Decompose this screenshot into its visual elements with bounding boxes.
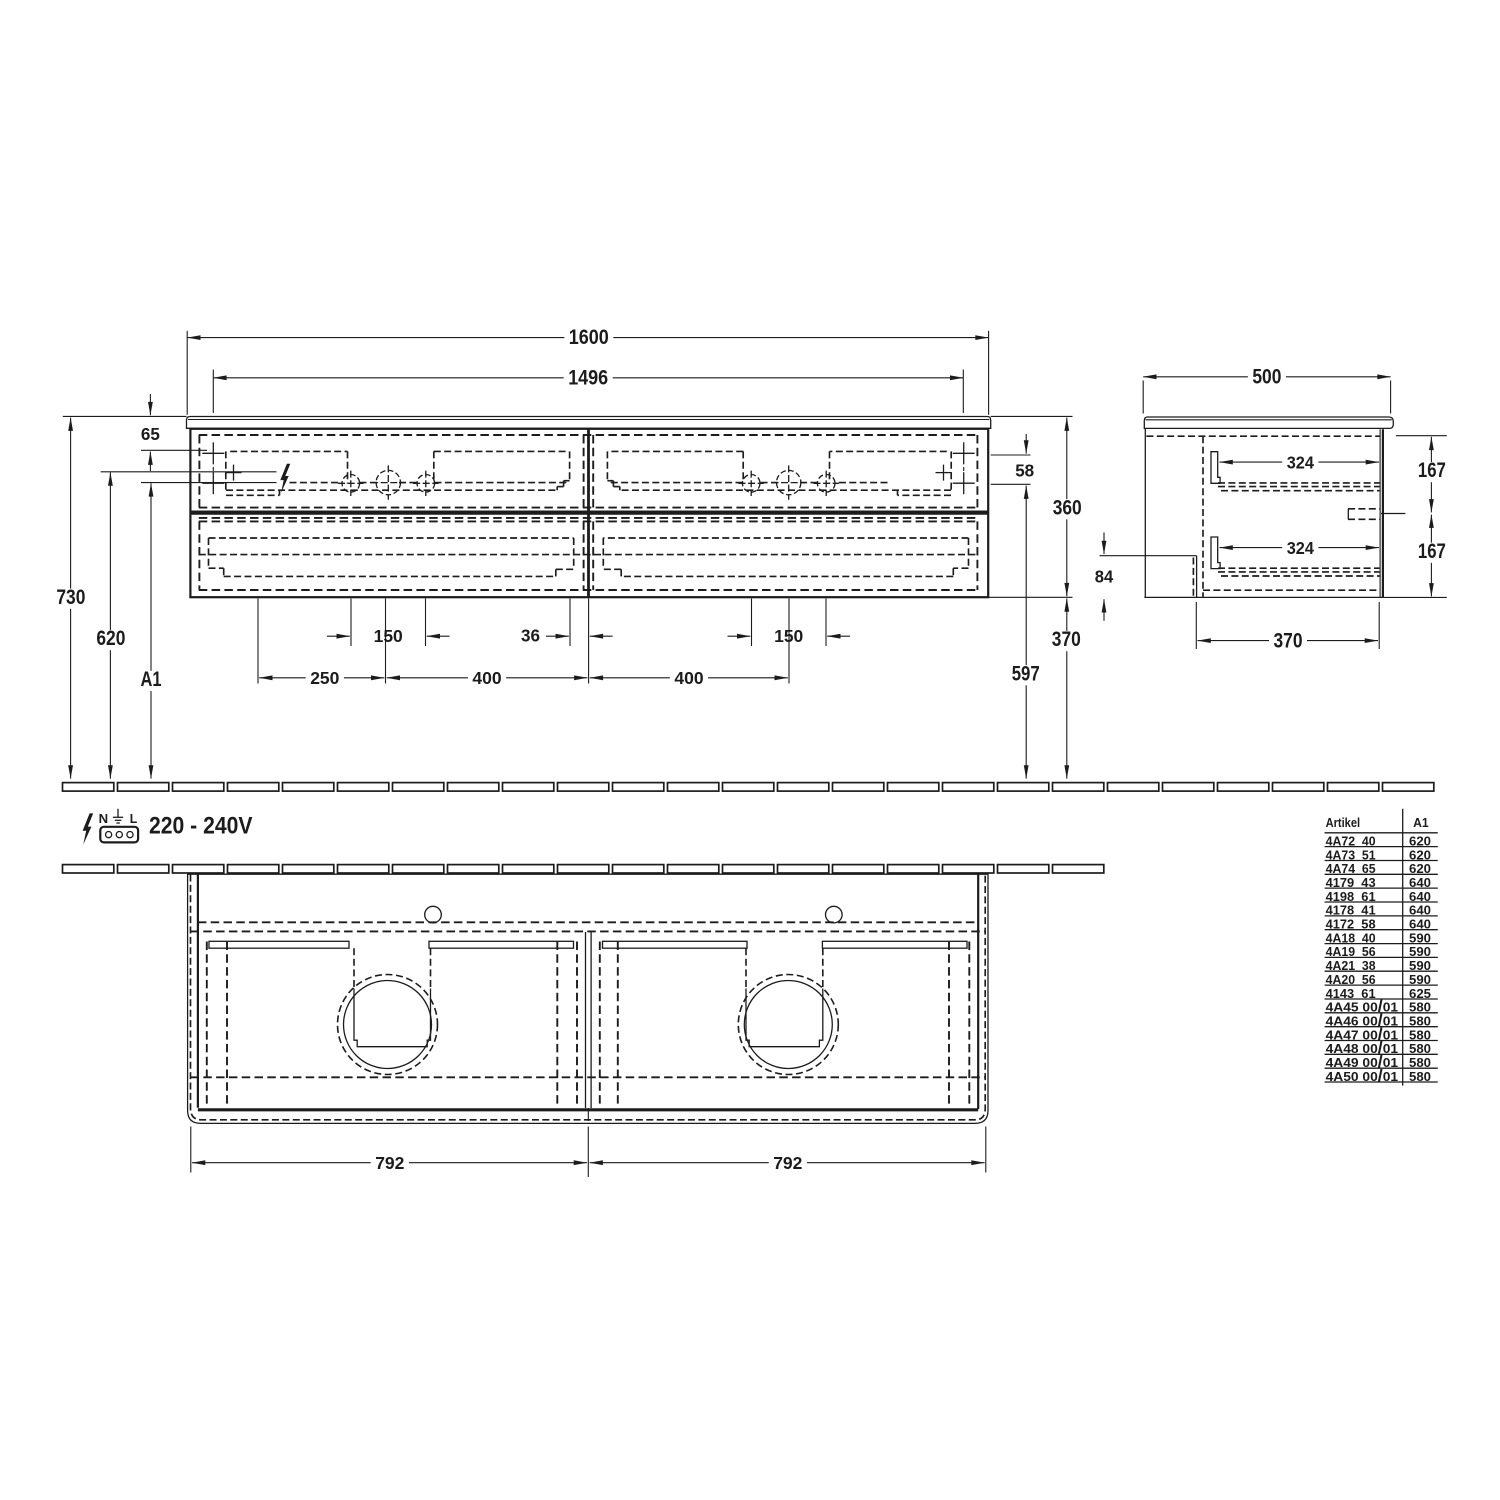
svg-text:58: 58 xyxy=(1015,461,1034,481)
svg-text:370: 370 xyxy=(1274,628,1303,652)
svg-text:250: 250 xyxy=(310,668,339,688)
svg-text:150: 150 xyxy=(774,626,803,646)
svg-text:1600: 1600 xyxy=(569,325,609,349)
svg-text:L: L xyxy=(130,811,138,826)
svg-text:A1: A1 xyxy=(141,667,162,691)
svg-text:84: 84 xyxy=(1095,566,1114,586)
svg-text:36: 36 xyxy=(521,625,540,645)
svg-text:792: 792 xyxy=(375,1153,404,1173)
svg-text:620: 620 xyxy=(96,626,125,650)
svg-text:A1: A1 xyxy=(1413,815,1429,830)
svg-text:792: 792 xyxy=(773,1153,802,1173)
svg-text:1496: 1496 xyxy=(568,366,608,390)
svg-text:360: 360 xyxy=(1053,495,1082,519)
svg-text:730: 730 xyxy=(56,585,85,609)
svg-text:324: 324 xyxy=(1287,453,1314,473)
svg-text:65: 65 xyxy=(141,424,160,444)
svg-text:167: 167 xyxy=(1418,539,1446,563)
svg-text:400: 400 xyxy=(472,668,501,688)
svg-text:597: 597 xyxy=(1012,661,1040,685)
svg-text:220 - 240V: 220 - 240V xyxy=(149,813,253,840)
svg-text:Artikel: Artikel xyxy=(1326,815,1361,830)
svg-text:N: N xyxy=(99,811,109,826)
svg-text:167: 167 xyxy=(1418,458,1446,482)
svg-text:150: 150 xyxy=(374,626,403,646)
svg-text:500: 500 xyxy=(1252,365,1281,389)
svg-text:324: 324 xyxy=(1287,538,1314,558)
svg-text:400: 400 xyxy=(674,668,703,688)
svg-text:370: 370 xyxy=(1052,627,1081,651)
